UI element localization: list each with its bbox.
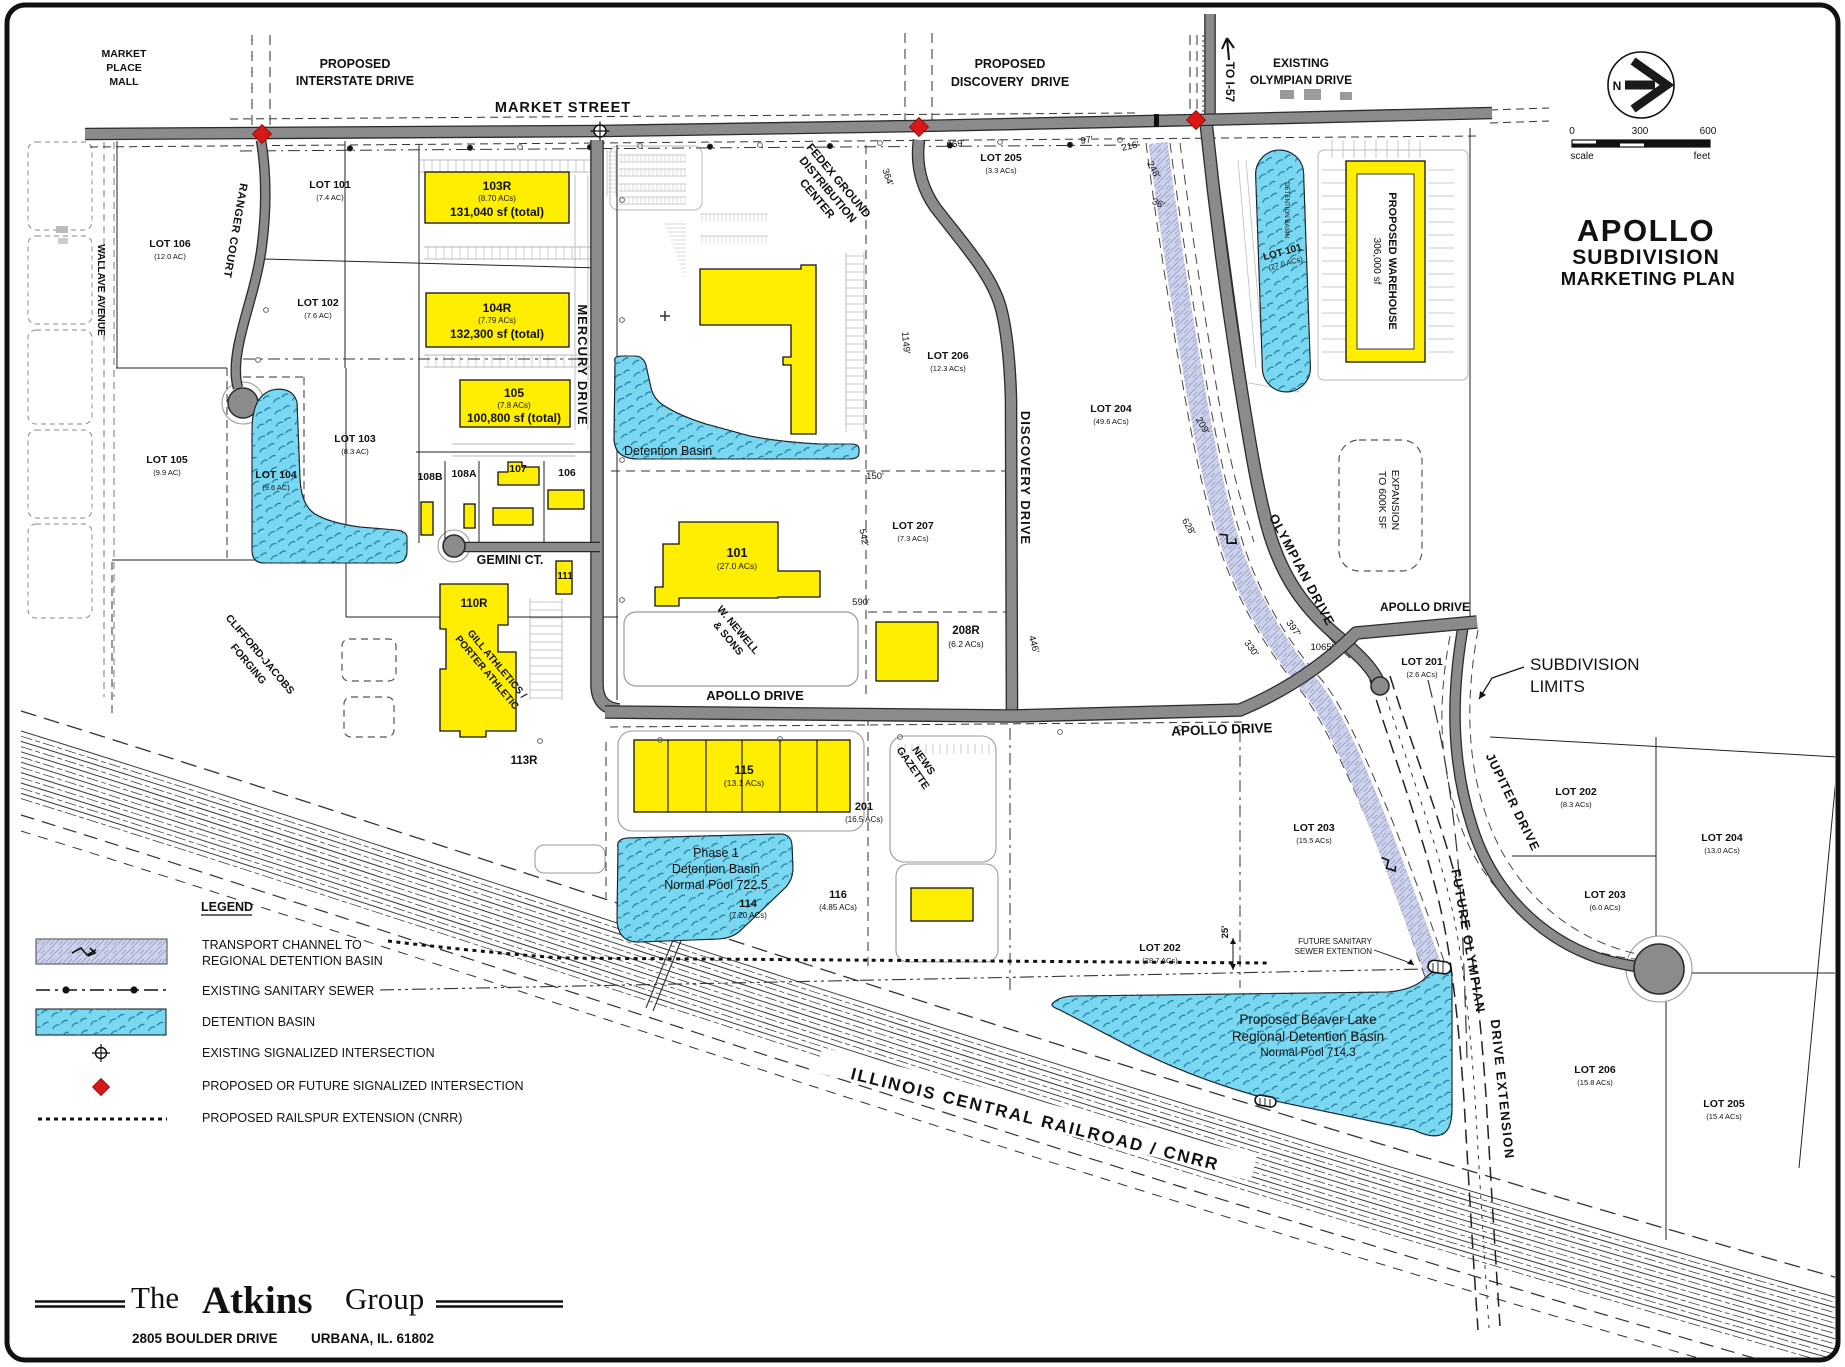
svg-text:EXISTING SANITARY SEWER: EXISTING SANITARY SEWER [202, 984, 374, 998]
svg-text:107: 107 [509, 463, 527, 475]
svg-text:PROPOSED OR FUTURE SIGNALIZED: PROPOSED OR FUTURE SIGNALIZED INTERSECTI… [202, 1079, 524, 1093]
svg-text:feet: feet [1694, 151, 1711, 162]
svg-text:FUTURE SANITARY: FUTURE SANITARY [1298, 937, 1373, 946]
svg-text:131,040 sf (total): 131,040 sf (total) [450, 205, 544, 219]
svg-text:(15.8 ACs): (15.8 ACs) [1577, 1078, 1613, 1087]
svg-text:scale: scale [1570, 151, 1594, 162]
svg-text:LOT 103: LOT 103 [334, 433, 376, 445]
svg-text:(9.6 AC): (9.6 AC) [262, 483, 290, 492]
svg-text:DISCOVERY DRIVE: DISCOVERY DRIVE [1018, 411, 1033, 545]
svg-text:LOT 106: LOT 106 [149, 238, 191, 250]
svg-text:1149': 1149' [899, 331, 912, 354]
svg-text:(16.5 ACs): (16.5 ACs) [845, 815, 883, 824]
svg-text:116: 116 [829, 889, 847, 901]
svg-text:201: 201 [855, 801, 873, 813]
svg-text:TO 600K SF: TO 600K SF [1376, 471, 1388, 529]
svg-text:PROPOSED WAREHOUSE: PROPOSED WAREHOUSE [1386, 192, 1398, 330]
svg-text:Detention Basin: Detention Basin [624, 444, 712, 458]
svg-text:(8.70 ACs): (8.70 ACs) [478, 194, 516, 203]
svg-text:PLACE: PLACE [106, 62, 142, 74]
svg-text:(12.3 ACs): (12.3 ACs) [930, 364, 966, 373]
svg-text:MERCURY DRIVE: MERCURY DRIVE [575, 304, 590, 425]
svg-text:OLYMPIAN DRIVE: OLYMPIAN DRIVE [1250, 73, 1352, 87]
svg-text:(12.0 AC): (12.0 AC) [154, 252, 186, 261]
svg-text:GEMINI CT.: GEMINI CT. [477, 553, 544, 567]
svg-text:114: 114 [739, 898, 758, 910]
svg-text:0: 0 [1569, 126, 1575, 137]
svg-text:APOLLO DRIVE: APOLLO DRIVE [706, 688, 804, 703]
svg-text:(7.20 ACs): (7.20 ACs) [729, 911, 767, 920]
svg-text:Normal Pool 722.5: Normal Pool 722.5 [664, 878, 768, 892]
svg-text:2805 BOULDER DRIVE: 2805 BOULDER DRIVE [132, 1331, 278, 1346]
svg-text:97': 97' [1080, 134, 1094, 147]
svg-text:590': 590' [852, 597, 870, 608]
svg-text:EXPANSION: EXPANSION [1389, 470, 1401, 531]
svg-text:(6.0 ACs): (6.0 ACs) [1589, 903, 1621, 912]
svg-text:113R: 113R [511, 755, 539, 767]
svg-text:Phase 1: Phase 1 [693, 846, 739, 860]
svg-text:APOLLO: APOLLO [1577, 213, 1715, 248]
svg-text:LOT 201: LOT 201 [1401, 656, 1443, 668]
svg-text:110R: 110R [461, 598, 489, 610]
svg-text:(7.79 ACs): (7.79 ACs) [478, 316, 516, 325]
svg-text:DETENTION BASIN: DETENTION BASIN [1283, 182, 1290, 238]
svg-text:MARKET STREET: MARKET STREET [495, 100, 631, 116]
svg-text:(7.6 AC): (7.6 AC) [304, 311, 332, 320]
svg-text:100,800 sf (total): 100,800 sf (total) [467, 411, 561, 425]
svg-text:N: N [1613, 79, 1622, 93]
svg-text:108A: 108A [451, 468, 477, 480]
svg-text:132,300 sf (total): 132,300 sf (total) [450, 327, 544, 341]
svg-text:LOT 205: LOT 205 [980, 152, 1022, 164]
svg-text:LOT 205: LOT 205 [1703, 1098, 1745, 1110]
svg-text:(4.85 ACs): (4.85 ACs) [819, 903, 857, 912]
svg-text:PROPOSED: PROPOSED [320, 57, 391, 71]
svg-text:LOT 206: LOT 206 [927, 350, 969, 362]
svg-text:LOT 105: LOT 105 [146, 454, 188, 466]
svg-text:150': 150' [866, 471, 884, 482]
svg-text:Proposed Beaver Lake: Proposed Beaver Lake [1239, 1012, 1376, 1027]
svg-text:Detention Basin: Detention Basin [672, 862, 760, 876]
svg-text:LOT 204: LOT 204 [1090, 403, 1132, 415]
svg-text:(7.4 AC): (7.4 AC) [316, 193, 344, 202]
svg-text:LOT 203: LOT 203 [1584, 889, 1626, 901]
svg-text:(9.9 AC): (9.9 AC) [153, 468, 181, 477]
svg-text:(2.6 ACs): (2.6 ACs) [1406, 670, 1438, 679]
svg-text:Regional Detention Basin: Regional Detention Basin [1232, 1029, 1384, 1044]
svg-text:104R: 104R [483, 301, 512, 315]
svg-text:(8.3 AC): (8.3 AC) [341, 447, 369, 456]
svg-text:SUBDIVISION: SUBDIVISION [1530, 655, 1640, 674]
svg-text:MARKETING PLAN: MARKETING PLAN [1561, 268, 1736, 289]
svg-text:SUBDIVISION: SUBDIVISION [1572, 246, 1720, 269]
svg-text:DISCOVERY DRIVE: DISCOVERY DRIVE [951, 75, 1069, 89]
svg-text:TO I-57: TO I-57 [1223, 62, 1237, 103]
svg-text:DETENTION BASIN: DETENTION BASIN [202, 1015, 315, 1029]
svg-text:(3.3 ACs): (3.3 ACs) [985, 166, 1017, 175]
svg-text:(28.7 ACs): (28.7 ACs) [1142, 956, 1178, 965]
svg-text:Atkins: Atkins [202, 1279, 313, 1322]
svg-text:(8.3 ACs): (8.3 ACs) [1560, 800, 1592, 809]
svg-text:URBANA, IL. 61802: URBANA, IL. 61802 [311, 1331, 434, 1346]
svg-text:SEWER EXTENTION: SEWER EXTENTION [1295, 947, 1373, 956]
svg-text:LOT 203: LOT 203 [1293, 822, 1335, 834]
svg-text:25': 25' [1220, 926, 1231, 939]
svg-text:(7.8 ACs): (7.8 ACs) [497, 401, 531, 410]
svg-text:The: The [131, 1280, 179, 1315]
svg-text:LOT 102: LOT 102 [297, 297, 339, 309]
svg-text:Group: Group [345, 1281, 424, 1316]
svg-text:PROPOSED: PROPOSED [975, 57, 1046, 71]
svg-text:(13.0 ACs): (13.0 ACs) [1704, 846, 1740, 855]
svg-text:1065': 1065' [1311, 642, 1334, 653]
svg-text:(15.5 ACs): (15.5 ACs) [1296, 836, 1332, 845]
svg-text:103R: 103R [483, 179, 512, 193]
svg-text:EXISTING SIGNALIZED INTERSECTI: EXISTING SIGNALIZED INTERSECTION [202, 1046, 435, 1060]
svg-text:PROPOSED RAILSPUR EXTENSION (C: PROPOSED RAILSPUR EXTENSION (CNRR) [202, 1111, 462, 1125]
svg-text:306,000 sf: 306,000 sf [1371, 238, 1382, 285]
svg-text:LOT 204: LOT 204 [1701, 832, 1743, 844]
svg-text:(6.2 ACs): (6.2 ACs) [948, 639, 984, 649]
svg-text:208R: 208R [952, 625, 980, 637]
svg-text:LEGEND: LEGEND [201, 900, 253, 914]
svg-text:APOLLO DRIVE: APOLLO DRIVE [1380, 600, 1470, 614]
svg-text:LOT 104: LOT 104 [255, 469, 297, 481]
svg-text:(49.6 ACs): (49.6 ACs) [1093, 417, 1129, 426]
svg-text:LOT 207: LOT 207 [892, 520, 934, 532]
svg-text:(27.0 ACs): (27.0 ACs) [717, 561, 757, 571]
svg-text:LOT 202: LOT 202 [1555, 786, 1597, 798]
svg-text:(15.4 ACs): (15.4 ACs) [1706, 1112, 1742, 1121]
svg-text:115: 115 [734, 763, 754, 777]
svg-text:(13.1 ACs): (13.1 ACs) [724, 778, 764, 788]
svg-text:106: 106 [558, 467, 576, 479]
svg-text:MALL: MALL [109, 76, 139, 88]
svg-text:LOT 202: LOT 202 [1139, 942, 1181, 954]
svg-text:EXISTING: EXISTING [1273, 56, 1329, 70]
svg-text:INTERSTATE DRIVE: INTERSTATE DRIVE [296, 74, 414, 88]
svg-text:TRANSPORT CHANNEL TO: TRANSPORT CHANNEL TO [202, 938, 362, 952]
svg-text:Normal Pool 714.3: Normal Pool 714.3 [1260, 1047, 1355, 1059]
svg-text:WALLAVE AVENUE: WALLAVE AVENUE [95, 244, 106, 336]
svg-text:111: 111 [557, 571, 573, 582]
svg-text:REGIONAL DETENTION BASIN: REGIONAL DETENTION BASIN [202, 954, 383, 968]
svg-text:600: 600 [1700, 126, 1717, 137]
svg-text:LOT 101: LOT 101 [309, 179, 351, 191]
svg-text:MARKET: MARKET [102, 48, 147, 60]
svg-text:LIMITS: LIMITS [1530, 677, 1585, 696]
svg-text:(7.3 ACs): (7.3 ACs) [897, 534, 929, 543]
svg-text:101: 101 [727, 546, 748, 560]
svg-text:LOT 206: LOT 206 [1574, 1064, 1616, 1076]
svg-text:108B: 108B [417, 471, 443, 483]
svg-text:105: 105 [504, 386, 524, 400]
svg-text:300: 300 [1632, 126, 1649, 137]
